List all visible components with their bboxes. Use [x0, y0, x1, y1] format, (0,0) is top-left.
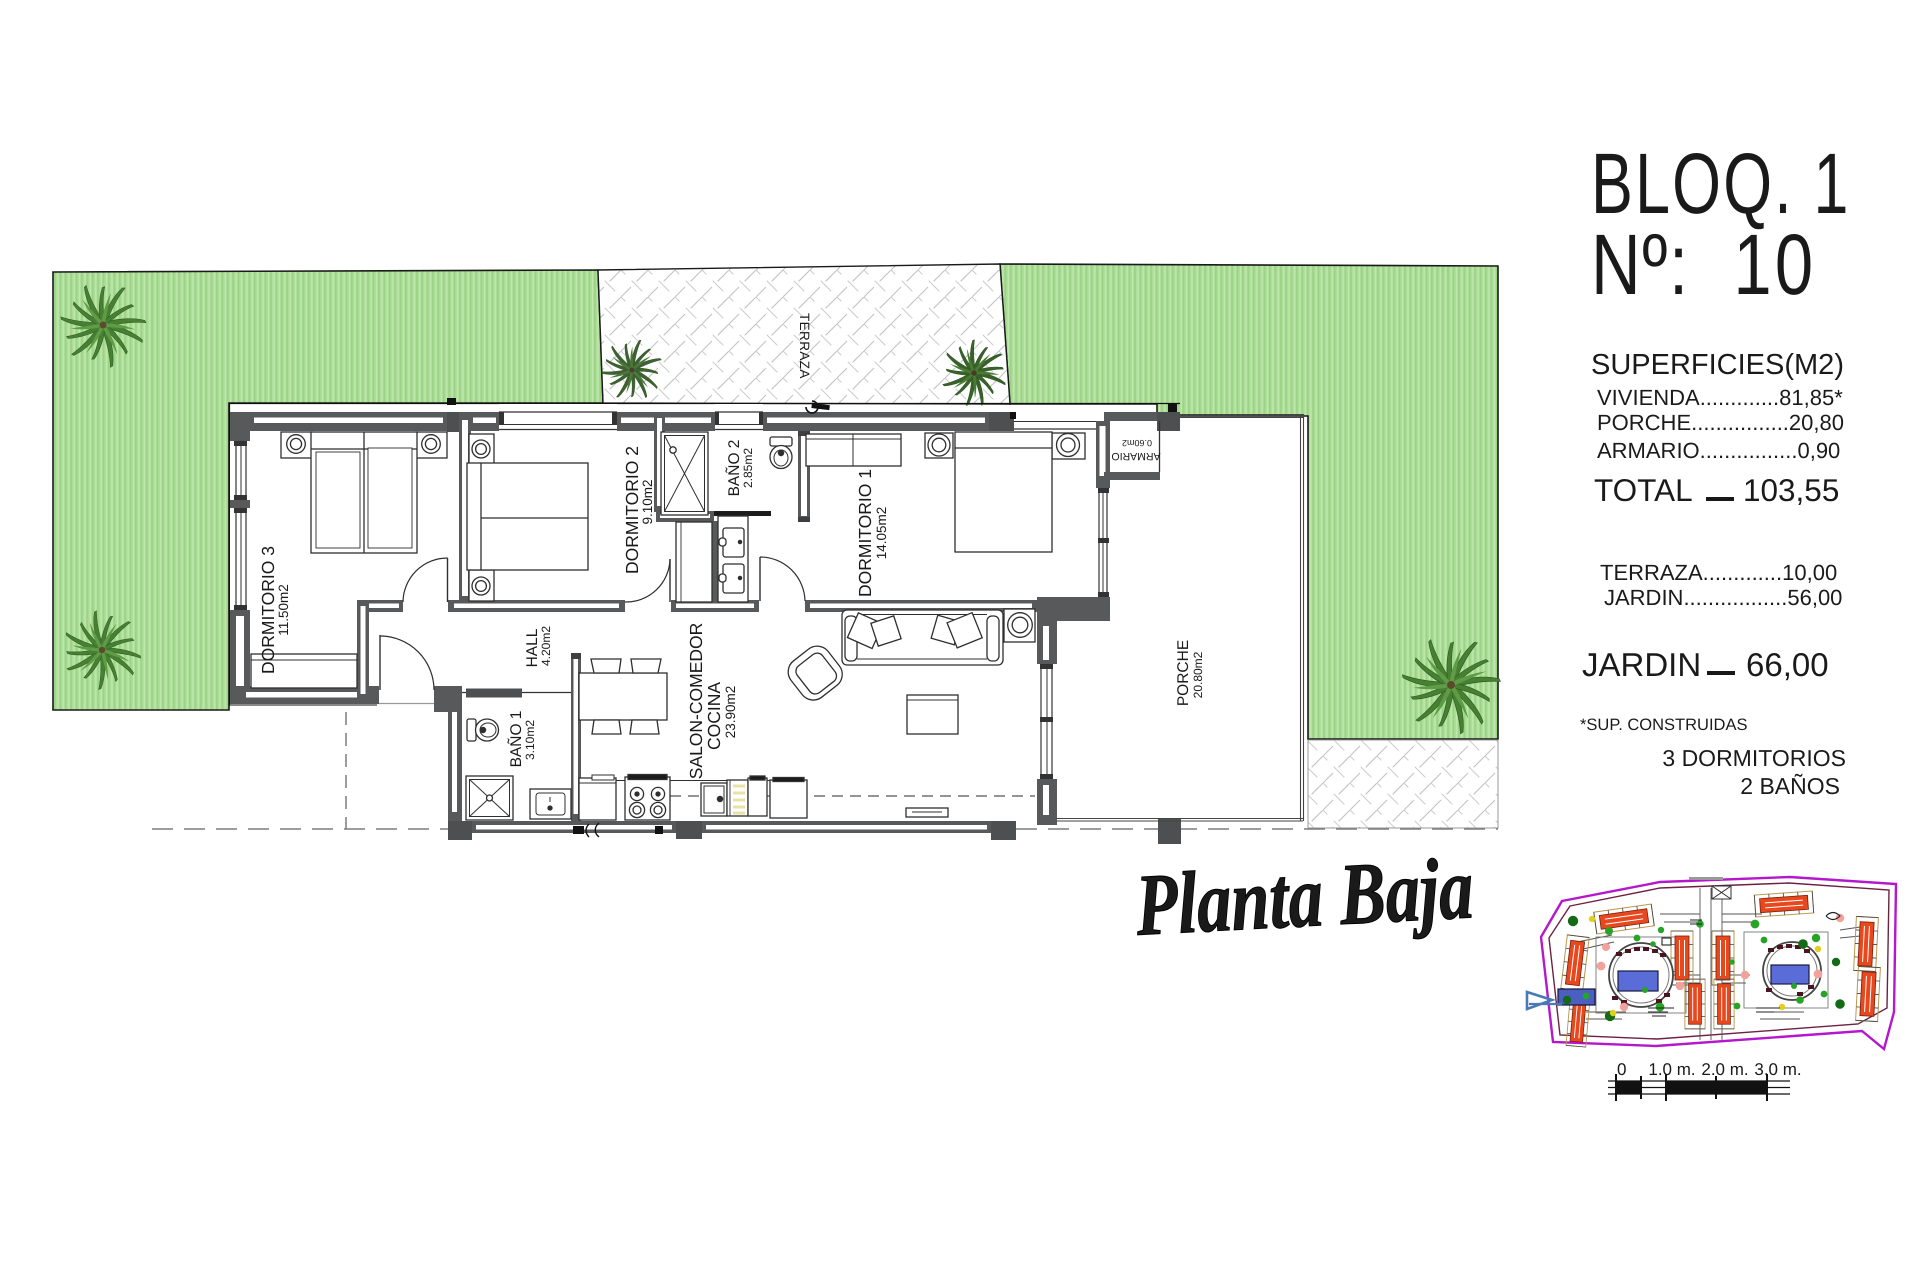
svg-text:VIVIENDA.............81,85*: VIVIENDA.............81,85* — [1597, 385, 1843, 410]
svg-text:DORMITORIO 2: DORMITORIO 2 — [622, 446, 642, 574]
svg-text:Nº:: Nº: — [1591, 217, 1690, 313]
svg-text:2.0 m.: 2.0 m. — [1701, 1060, 1748, 1079]
svg-text:10: 10 — [1733, 217, 1816, 313]
svg-text:JARDIN: JARDIN — [1582, 646, 1701, 683]
svg-text:TERRAZA.............10,00: TERRAZA.............10,00 — [1600, 560, 1837, 585]
svg-text:4.20m2: 4.20m2 — [539, 626, 553, 666]
svg-text:9.10m2: 9.10m2 — [640, 479, 655, 524]
svg-text:0.60m2: 0.60m2 — [1122, 438, 1152, 448]
svg-text:COCINA: COCINA — [704, 682, 724, 750]
svg-text:11.50m2: 11.50m2 — [276, 584, 291, 636]
svg-text:0: 0 — [1617, 1060, 1626, 1079]
svg-text:TOTAL: TOTAL — [1594, 472, 1693, 508]
svg-text:23.90m2: 23.90m2 — [723, 686, 738, 739]
svg-text:103,55: 103,55 — [1743, 472, 1839, 508]
svg-text:PORCHE................20,80: PORCHE................20,80 — [1597, 410, 1844, 435]
svg-text:ARMARIO: ARMARIO — [1111, 450, 1160, 462]
svg-text:66,00: 66,00 — [1746, 646, 1829, 683]
svg-text:DORMITORIO 3: DORMITORIO 3 — [258, 546, 278, 674]
svg-text:2.85m2: 2.85m2 — [741, 448, 755, 488]
svg-text:SUPERFICIES(M2): SUPERFICIES(M2) — [1591, 349, 1844, 381]
svg-text:ARMARIO................0,90: ARMARIO................0,90 — [1597, 438, 1840, 463]
svg-text:SALON-COMEDOR: SALON-COMEDOR — [686, 623, 706, 780]
svg-text:JARDIN.................56,00: JARDIN.................56,00 — [1604, 585, 1842, 610]
svg-text:1.0 m.: 1.0 m. — [1648, 1060, 1695, 1079]
svg-text:TERRAZA: TERRAZA — [797, 313, 812, 379]
svg-text:3 DORMITORIOS: 3 DORMITORIOS — [1662, 745, 1846, 771]
svg-text:PORCHE: PORCHE — [1175, 640, 1192, 706]
svg-text:*SUP. CONSTRUIDAS: *SUP. CONSTRUIDAS — [1580, 716, 1747, 734]
svg-text:3.0 m.: 3.0 m. — [1754, 1060, 1801, 1079]
svg-text:3.10m2: 3.10m2 — [523, 720, 537, 760]
svg-text:14.05m2: 14.05m2 — [874, 507, 889, 560]
svg-text:Planta Baja: Planta Baja — [1133, 840, 1476, 955]
svg-text:2 BAÑOS: 2 BAÑOS — [1740, 773, 1840, 799]
svg-text:DORMITORIO 1: DORMITORIO 1 — [855, 469, 875, 597]
svg-text:20.80m2: 20.80m2 — [1191, 651, 1205, 698]
